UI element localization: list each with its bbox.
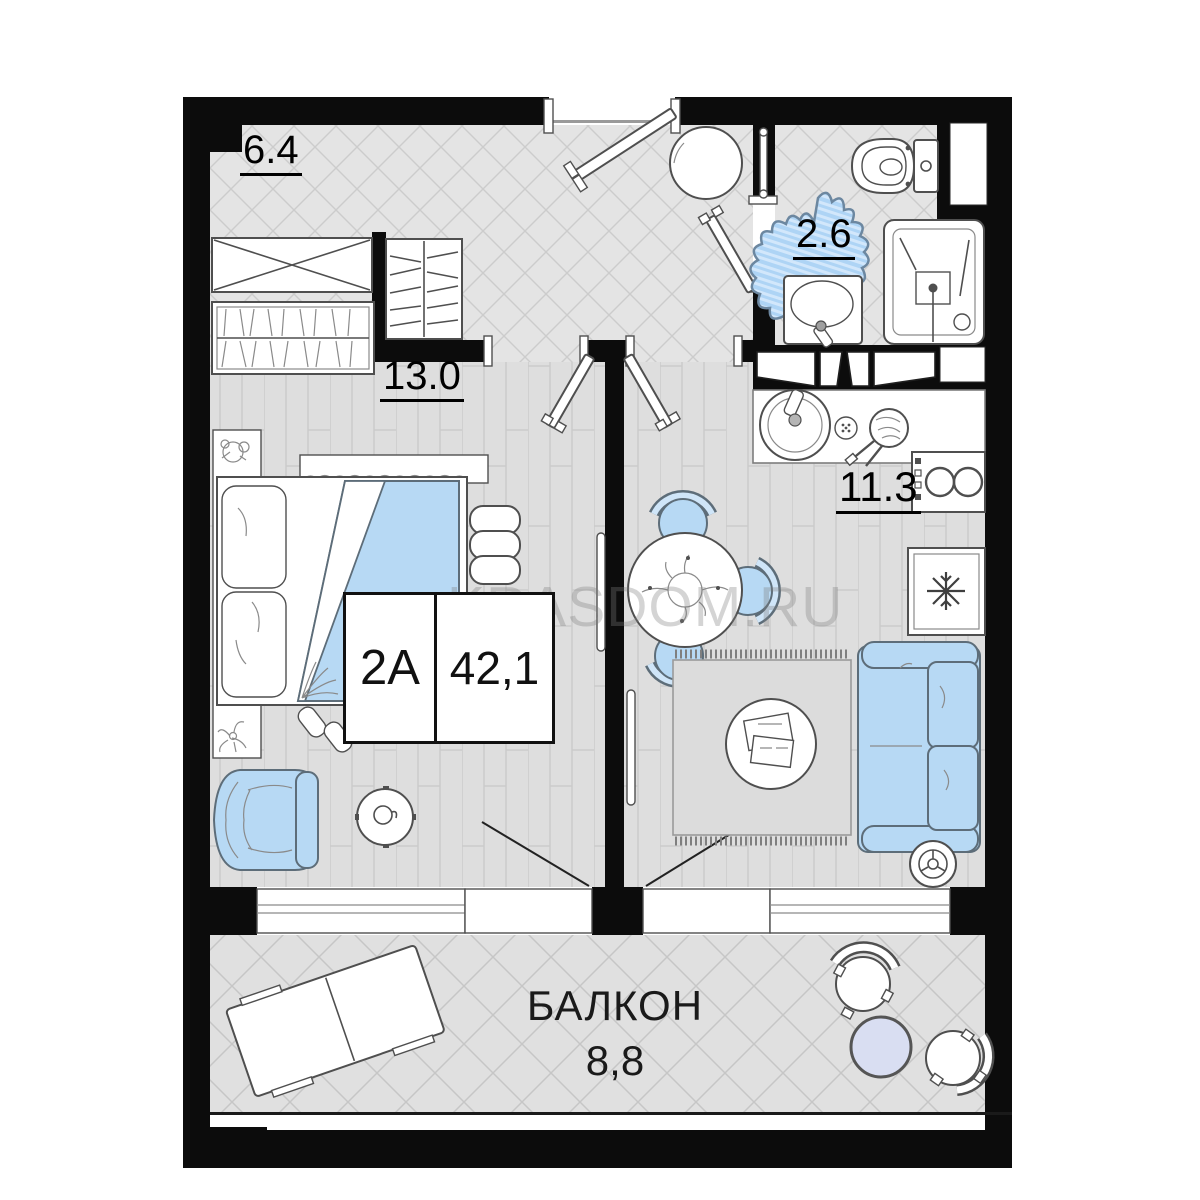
pouf-icon [470,506,520,584]
balcony-label: БАЛКОН 8,8 [420,982,810,1085]
unit-area-label: 42,1 [437,595,552,741]
hallway-area-label: 6.4 [240,130,302,176]
wardrobe-icon [212,238,372,292]
balcony-door-icon [643,889,770,933]
fridge-icon [908,548,985,635]
window-icon [257,889,465,933]
window-icon [770,889,950,933]
towel-rail-icon [760,128,768,198]
kitchen-living-area-label: 11.3 [836,466,921,514]
balcony-area-label: 8,8 [420,1037,810,1085]
shoe-rack-icon [212,302,374,374]
balcony-table-icon [851,1017,911,1077]
unit-type-label: 2A [346,595,437,741]
armchair-icon [214,770,318,870]
bedroom-area-label: 13.0 [380,356,464,402]
hallway-mirror-icon [670,127,742,199]
toilet-icon [852,139,938,193]
bathroom-area-label: 2.6 [793,214,855,260]
stove-icon [912,452,985,512]
vacuum-icon [910,841,956,887]
floor-plan: KRASDOM.RU 6.4 13.0 2.6 11.3 2A 42,1 БАЛ… [0,0,1200,1200]
balcony-door-icon [465,889,592,933]
sofa-icon [858,642,980,852]
shower-icon [884,220,984,344]
unit-info-box: 2A 42,1 [343,592,555,744]
balcony-name-label: БАЛКОН [420,982,810,1030]
coffee-table-icon [726,699,816,789]
hanger-closet-icon [386,239,462,339]
sink-icon [784,276,862,348]
